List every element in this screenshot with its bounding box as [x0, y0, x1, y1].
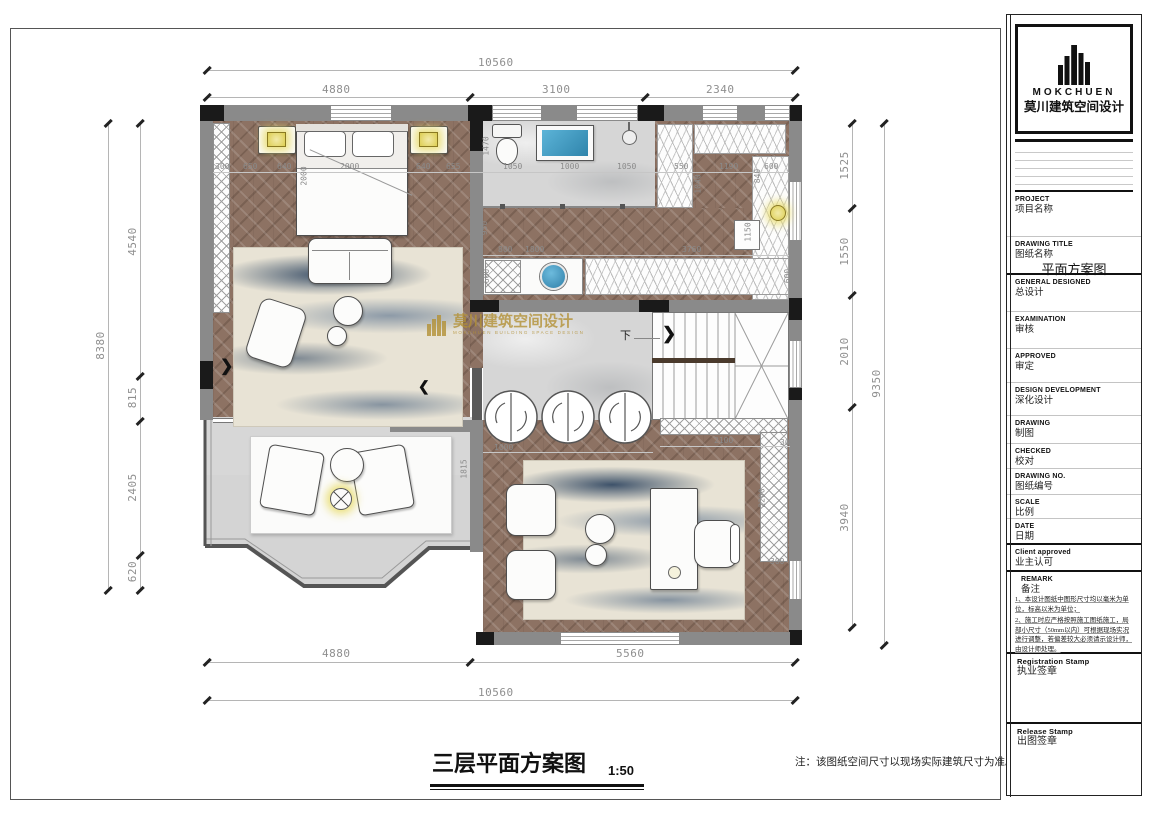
dim-label: 2340 [706, 84, 735, 95]
field-drawing-title: DRAWING TITLE 图纸名称 平面方案图 [1007, 237, 1141, 275]
wall-segment [476, 632, 494, 645]
sheet-title: 三层平面方案图 [432, 752, 586, 776]
floor-lamp-icon [330, 488, 352, 510]
glass-partition [483, 206, 655, 208]
toilet-bowl [496, 138, 518, 165]
plan-dim: 1000 [560, 163, 579, 171]
wall-segment [669, 300, 789, 312]
window [764, 105, 790, 121]
glass-door-handle [620, 204, 625, 209]
wall-segment [494, 632, 560, 645]
window [330, 105, 392, 121]
dim-label: 4880 [322, 84, 351, 95]
field-approved: APPROVED 审定 [1007, 349, 1141, 383]
wall-segment [542, 105, 576, 121]
wall-segment [638, 105, 664, 121]
plan-dim: 1190 [719, 163, 738, 171]
watermark-en: MOKCHUEN BUILDING SPACE DESIGN [453, 330, 584, 336]
dim-line [108, 123, 109, 590]
dim-label: 3100 [542, 84, 571, 95]
stair-direction-arrow-icon: ❯ [662, 324, 676, 344]
wall-segment [224, 105, 330, 121]
plan-dim: 2000 [295, 172, 314, 180]
company-logo: MOKCHUEN 莫川建筑空间设计 [1015, 24, 1133, 134]
plan-dim: 1815 [455, 465, 474, 473]
window [560, 632, 680, 645]
plan-dim: 1050 [503, 163, 522, 171]
plan-dim: 300 [770, 558, 784, 566]
dim-label: 1525 [830, 160, 859, 171]
side-table [585, 514, 615, 544]
dim-line [207, 97, 795, 98]
watermark-logo-icon [426, 314, 448, 336]
company-name-en: MOKCHUEN [1033, 87, 1116, 98]
plan-dim: 600 [764, 163, 778, 171]
ceiling-lamp-icon [770, 205, 786, 221]
dim-label: 3940 [830, 512, 859, 523]
company-name-cn: 莫川建筑空间设计 [1024, 100, 1124, 114]
plan-dim: 300 [780, 439, 794, 447]
plan-dim: 1150 [739, 228, 758, 236]
shower-head-icon [622, 130, 637, 145]
wall-segment [499, 300, 639, 312]
field-drawing-no: DRAWING NO. 图纸编号 [1007, 469, 1141, 495]
plan-dim: 640 [416, 163, 430, 171]
wall-segment [200, 121, 213, 361]
sofa-cushion-line [349, 252, 350, 280]
armchair [506, 484, 556, 536]
dim-label: 8380 [86, 340, 115, 351]
plan-dim: 650 [243, 163, 257, 171]
dim-label: 4880 [322, 648, 351, 659]
sofa [308, 238, 392, 284]
company-logo-icon [1055, 45, 1093, 85]
dim-line [140, 123, 141, 590]
wall-segment [470, 432, 483, 552]
table-lamp-icon [419, 132, 438, 147]
plan-dim: 1800 [525, 246, 544, 254]
field-design-development: DESIGN DEVELOPMENT 深化设计 [1007, 383, 1141, 416]
bathtub-water [542, 130, 588, 156]
remark-note-1: 1、本设计图纸中图形尺寸均以毫米为单位，标高以米为单位； [1015, 595, 1133, 614]
wash-basin [540, 263, 567, 290]
wall-segment [789, 400, 802, 560]
plan-dim: 1000 [494, 444, 513, 452]
wall-segment [789, 298, 802, 320]
plan-dim: 950 [478, 224, 492, 232]
wardrobe [213, 123, 230, 313]
glass-door-handle [500, 204, 505, 209]
window [702, 105, 738, 121]
wall-segment [200, 389, 213, 420]
plan-dim: 655 [446, 163, 460, 171]
field-scale: SCALE 比例 [1007, 495, 1141, 519]
closet-hanger-rack [585, 258, 789, 295]
wall-segment [789, 600, 802, 630]
window [492, 105, 542, 121]
dim-line [207, 662, 795, 663]
stair-down-label: 下 [620, 330, 631, 342]
wall-segment [790, 632, 802, 645]
field-examination: EXAMINATION 审核 [1007, 312, 1141, 349]
toilet [492, 124, 522, 138]
swivel-seats [484, 389, 652, 445]
remark-note-2: 2、施工时应严格按照施工图纸施工，局部小尺寸（50mm以内）可根据现场实况进行调… [1015, 616, 1133, 654]
door-jamb [472, 368, 482, 420]
pillow [304, 131, 346, 157]
table-lamp-icon [267, 132, 286, 147]
stair-leader-line [634, 338, 660, 339]
dim-line [207, 70, 795, 71]
desk-lamp-icon [668, 566, 681, 579]
dim-line [207, 700, 795, 701]
plan-dim: 1040 [689, 180, 708, 188]
dim-label: 1550 [830, 246, 859, 257]
plan-dim: 2000 [340, 163, 359, 171]
window [576, 105, 638, 121]
wall-segment [468, 105, 492, 121]
plan-dim: 3760 [682, 246, 701, 254]
field-project: PROJECT 项目名称 [1007, 192, 1141, 237]
glass-door-handle [560, 204, 565, 209]
dim-label: 5560 [616, 648, 645, 659]
watermark-cn: 莫川建筑空间设计 [453, 314, 584, 330]
dim-label: 4540 [118, 236, 147, 247]
round-table [330, 448, 364, 482]
wall-segment [789, 121, 802, 181]
plan-dim: 1050 [617, 163, 636, 171]
plan-dim: 600 [781, 272, 795, 280]
wall-segment [738, 105, 764, 121]
wall-segment [790, 105, 802, 121]
plan-dim: 300 [215, 163, 229, 171]
direction-arrow-icon: ❯ [220, 356, 233, 376]
window [789, 340, 802, 388]
window [789, 181, 802, 241]
wall-segment [789, 388, 802, 400]
wall-segment [789, 320, 802, 340]
plan-dim: 550 [674, 163, 688, 171]
dim-label: 2010 [830, 346, 859, 357]
dim-label: 2405 [118, 482, 147, 493]
dim-label: 815 [122, 392, 143, 403]
plan-dim: 800 [498, 246, 512, 254]
plan-dim: 600 [480, 272, 494, 280]
title-block: MOKCHUEN 莫川建筑空间设计 PROJECT 项目名称 DRAWING T… [1006, 14, 1142, 796]
field-remark: REMARK 备注 [1007, 570, 1141, 592]
wall-segment [664, 105, 702, 121]
dim-label: 10560 [478, 57, 514, 68]
title-block-inner-line [1010, 15, 1011, 797]
drawing-sheet: ❯ ❮ 下 ❯ 莫川建筑空间设计 MOKCHUEN BUILDING SPACE… [0, 0, 1150, 813]
closet-hanger-rack [694, 124, 786, 154]
plan-dim: 2290 [753, 494, 772, 502]
plan-dim: 640 [277, 163, 291, 171]
field-registration-stamp: Registration Stamp 执业签章 [1007, 652, 1141, 722]
wall-segment [680, 632, 790, 645]
side-table [585, 544, 607, 566]
floor-plan: ❯ ❮ 下 ❯ 莫川建筑空间设计 MOKCHUEN BUILDING SPACE… [0, 0, 1005, 813]
wall-segment [392, 105, 468, 121]
office-chair-back [730, 524, 740, 564]
sofa-back-line [312, 250, 388, 251]
field-drawing: DRAWING 制图 [1007, 416, 1141, 444]
field-date: DATE 日期 [1007, 519, 1141, 543]
wall-segment [200, 105, 224, 121]
field-release-stamp: Release Stamp 出图签章 [1007, 722, 1141, 798]
plan-dim: 1470 [477, 142, 496, 150]
dim-label: 9350 [862, 378, 891, 389]
dim-label: 620 [122, 566, 143, 577]
title-underline-thin [430, 789, 644, 790]
field-checked: CHECKED 校对 [1007, 444, 1141, 469]
side-table [333, 296, 363, 326]
lounge-chair [259, 444, 325, 517]
wall-segment [470, 300, 483, 312]
writing-lines [1015, 145, 1133, 187]
window [789, 560, 802, 600]
plan-dim: 2100 [714, 437, 733, 445]
door-swing-arrow-icon: ❮ [418, 378, 430, 395]
plan-dim: 840 [751, 172, 765, 180]
shower-arm [628, 122, 630, 131]
side-table [327, 326, 347, 346]
wall-segment [200, 361, 213, 389]
sheet-scale: 1:50 [608, 764, 634, 778]
armchair [506, 550, 556, 600]
wall-segment [483, 300, 499, 312]
field-general-designed: GENERAL DESIGNED 总设计 [1007, 275, 1141, 312]
sheet-note: 注：该图纸空间尺寸以现场实际建筑尺寸为准。 [795, 757, 1016, 769]
wall-segment [639, 300, 669, 312]
title-underline [430, 784, 644, 787]
remark-notes: 1、本设计图纸中图形尺寸均以毫米为单位，标高以米为单位； 2、施工时应严格按照施… [1007, 592, 1141, 652]
dim-line [852, 123, 853, 627]
field-client-approved: Client approved 业主认可 [1007, 543, 1141, 570]
dim-label: 10560 [478, 687, 514, 698]
watermark: 莫川建筑空间设计 MOKCHUEN BUILDING SPACE DESIGN [426, 314, 584, 336]
pillow [352, 131, 394, 157]
